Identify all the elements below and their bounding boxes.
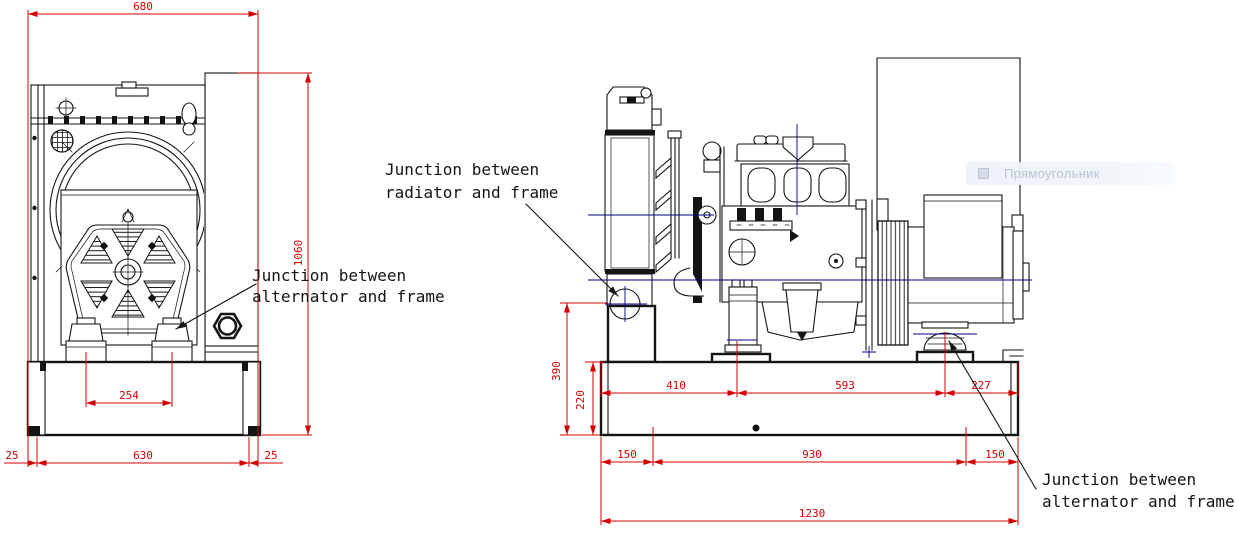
- dim-foot-spacing: 254: [119, 389, 139, 402]
- context-menu-item-label: Прямоугольник: [1004, 166, 1100, 181]
- drawing-canvas: 680 1060 254 25 630 25 390 220 410 593 2…: [0, 0, 1239, 533]
- radiator-side: [605, 87, 661, 362]
- annotation-radiator-frame-line2: radiator and frame: [385, 183, 558, 202]
- dim-frame-height: 220: [574, 390, 587, 410]
- leader-radiator-frame: [526, 204, 618, 296]
- control-box-front: [205, 73, 258, 346]
- breather-mesh: [51, 130, 73, 152]
- dim-hole-left: 150: [617, 448, 637, 461]
- radiator-cap: [116, 88, 148, 96]
- dim-front-width: 680: [133, 0, 153, 13]
- alternator-terminal-box: [924, 195, 1002, 278]
- frame-end-channel: [1003, 350, 1023, 362]
- engine-side: [674, 136, 872, 350]
- front-view: [28, 73, 260, 435]
- rectangle-icon: [978, 168, 989, 179]
- alternator-air-grille: [878, 221, 908, 345]
- base-frame-front: [28, 362, 260, 435]
- dim-mount-spacing: 593: [835, 379, 855, 392]
- dim-base-right: 25: [264, 449, 277, 462]
- annotation-alt-frame-side-line1: Junction between: [1042, 470, 1196, 489]
- dim-total-length: 1230: [799, 507, 826, 520]
- dim-base: 630: [133, 449, 153, 462]
- context-menu-item-rectangle[interactable]: Прямоугольник: [966, 162, 1175, 185]
- genset-technical-drawing: 680 1060 254 25 630 25 390 220 410 593 2…: [0, 0, 1239, 533]
- side-view: [588, 58, 1032, 435]
- base-frame-side: [601, 362, 1018, 435]
- handle: [182, 103, 196, 125]
- dim-engine-mount: 410: [666, 379, 686, 392]
- dim-alt-to-end: 227: [971, 379, 991, 392]
- annotation-radiator-frame-line1: Junction between: [385, 160, 539, 179]
- dim-hole-spacing: 930: [802, 448, 822, 461]
- dim-base-left: 25: [5, 449, 18, 462]
- annotation-alt-frame-front-line1: Junction between: [252, 266, 406, 285]
- radiator-pedestal: [608, 306, 655, 362]
- annotation-alt-frame-front-line2: alternator and frame: [252, 287, 445, 306]
- annotation-alt-frame-side-line2: alternator and frame: [1042, 492, 1235, 511]
- dim-front-height: 1060: [292, 240, 305, 267]
- grille-tab: [877, 199, 888, 221]
- dim-junction-height: 390: [550, 361, 563, 381]
- dim-hole-right: 150: [985, 448, 1005, 461]
